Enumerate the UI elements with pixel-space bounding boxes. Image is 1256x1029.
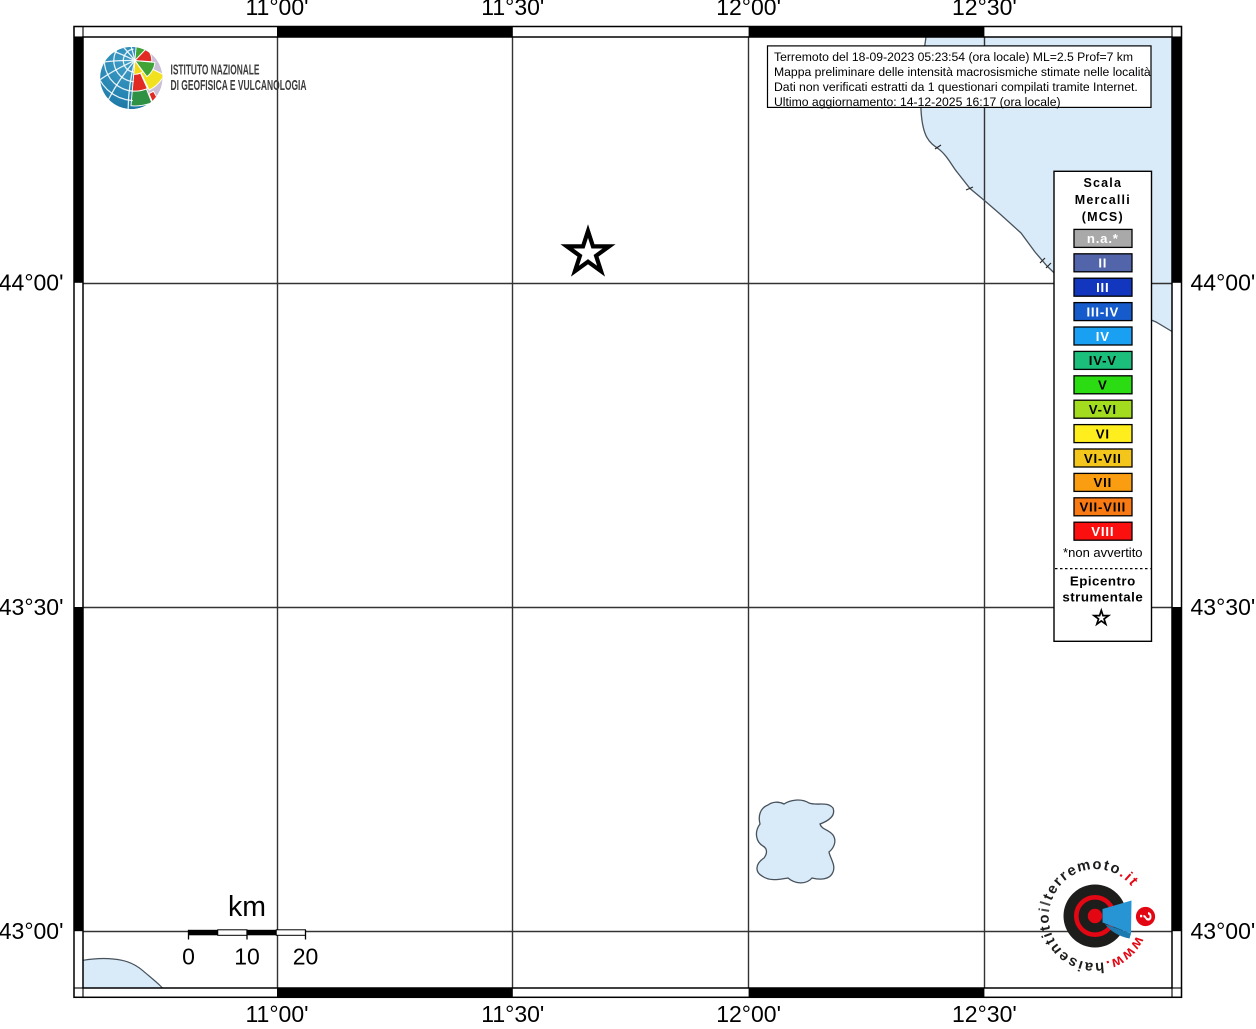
svg-text:43°30': 43°30': [0, 594, 64, 620]
svg-text:*non avvertito: *non avvertito: [1063, 545, 1143, 560]
svg-text:11°30': 11°30': [481, 1001, 544, 1024]
svg-text:12°00': 12°00': [716, 1001, 781, 1024]
svg-text:11°00': 11°00': [245, 1001, 308, 1024]
svg-text:12°30': 12°30': [952, 1001, 1017, 1024]
svg-text:DI GEOFISICA E VULCANOLOGIA: DI GEOFISICA E VULCANOLOGIA: [171, 77, 307, 94]
svg-text:Mappa preliminare delle intens: Mappa preliminare delle intensità macros…: [774, 65, 1151, 79]
svg-text:II: II: [1098, 256, 1107, 271]
svg-text:VIII: VIII: [1091, 524, 1114, 539]
svg-text:?: ?: [1136, 911, 1155, 921]
svg-text:VII: VII: [1094, 475, 1113, 490]
svg-text:44°00': 44°00': [0, 270, 64, 296]
svg-text:11°30': 11°30': [481, 0, 544, 20]
svg-text:20: 20: [293, 944, 319, 970]
svg-text:n.a.*: n.a.*: [1087, 231, 1119, 246]
svg-text:Epicentro: Epicentro: [1070, 574, 1136, 589]
svg-text:Scala: Scala: [1083, 176, 1122, 190]
svg-text:44°00': 44°00': [1191, 270, 1256, 296]
svg-text:VI: VI: [1096, 426, 1110, 441]
svg-text:12°00': 12°00': [716, 0, 781, 20]
svg-text:0: 0: [182, 944, 195, 970]
svg-text:Ultimo aggiornamento: 14-12-20: Ultimo aggiornamento: 14-12-2025 16:17 (…: [774, 95, 1061, 109]
svg-text:V-VI: V-VI: [1089, 402, 1117, 417]
svg-text:Mercalli: Mercalli: [1075, 193, 1131, 207]
svg-text:43°00': 43°00': [1191, 918, 1256, 944]
svg-text:Terremoto del 18-09-2023 05:23: Terremoto del 18-09-2023 05:23:54 (ora l…: [774, 50, 1133, 64]
svg-text:IV: IV: [1096, 329, 1110, 344]
svg-text:VI-VII: VI-VII: [1084, 451, 1122, 466]
svg-text:10: 10: [234, 944, 260, 970]
svg-text:VII-VIII: VII-VIII: [1079, 500, 1126, 515]
svg-text:11°00': 11°00': [245, 0, 308, 20]
svg-text:12°30': 12°30': [952, 0, 1017, 20]
svg-text:km: km: [228, 891, 266, 923]
svg-text:Dati non verificati estratti d: Dati non verificati estratti da 1 questi…: [774, 80, 1138, 94]
svg-text:III: III: [1096, 280, 1109, 295]
svg-text:IV-V: IV-V: [1089, 353, 1117, 368]
svg-text:(MCS): (MCS): [1082, 210, 1124, 224]
svg-text:III-IV: III-IV: [1086, 304, 1119, 319]
svg-text:43°00': 43°00': [0, 918, 64, 944]
svg-text:strumentale: strumentale: [1062, 590, 1143, 605]
svg-text:V: V: [1098, 378, 1108, 393]
svg-text:43°30': 43°30': [1191, 594, 1256, 620]
